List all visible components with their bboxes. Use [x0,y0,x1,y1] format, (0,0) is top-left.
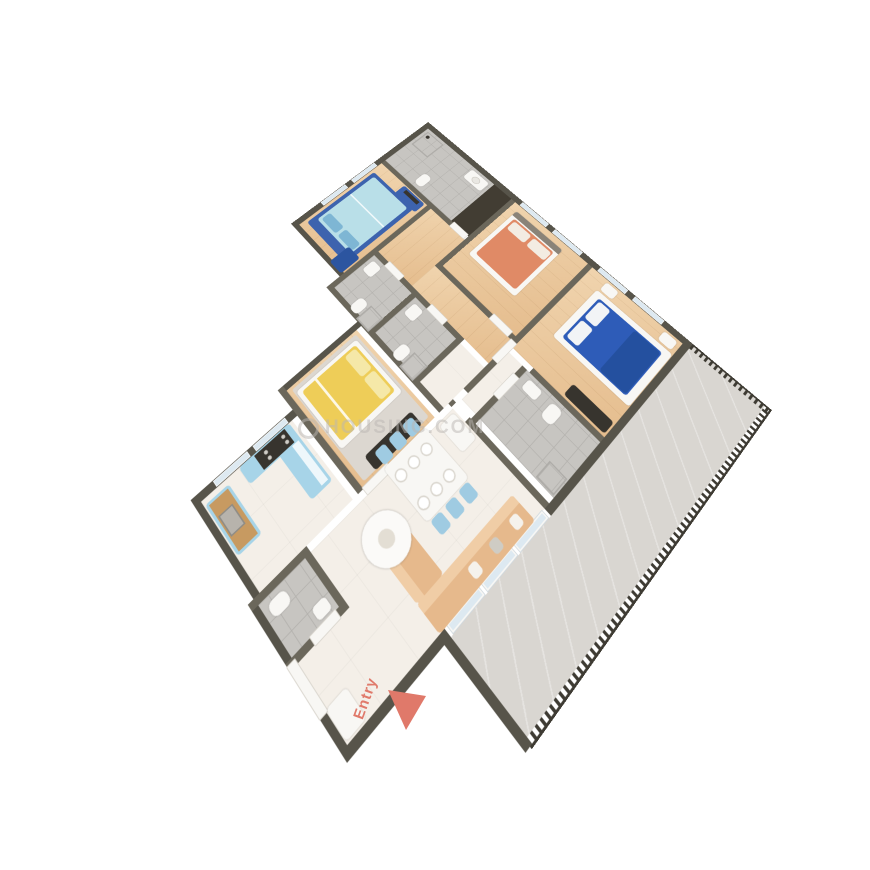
floor-plan-canvas: HOUSING.COM Entry [0,0,870,870]
watermark-text: HOUSING.COM [325,417,485,439]
entry-marker: Entry [330,660,450,760]
entry-arrow-icon [330,660,450,760]
watermark-logo-icon [298,418,319,439]
watermark: HOUSING.COM [298,417,485,439]
